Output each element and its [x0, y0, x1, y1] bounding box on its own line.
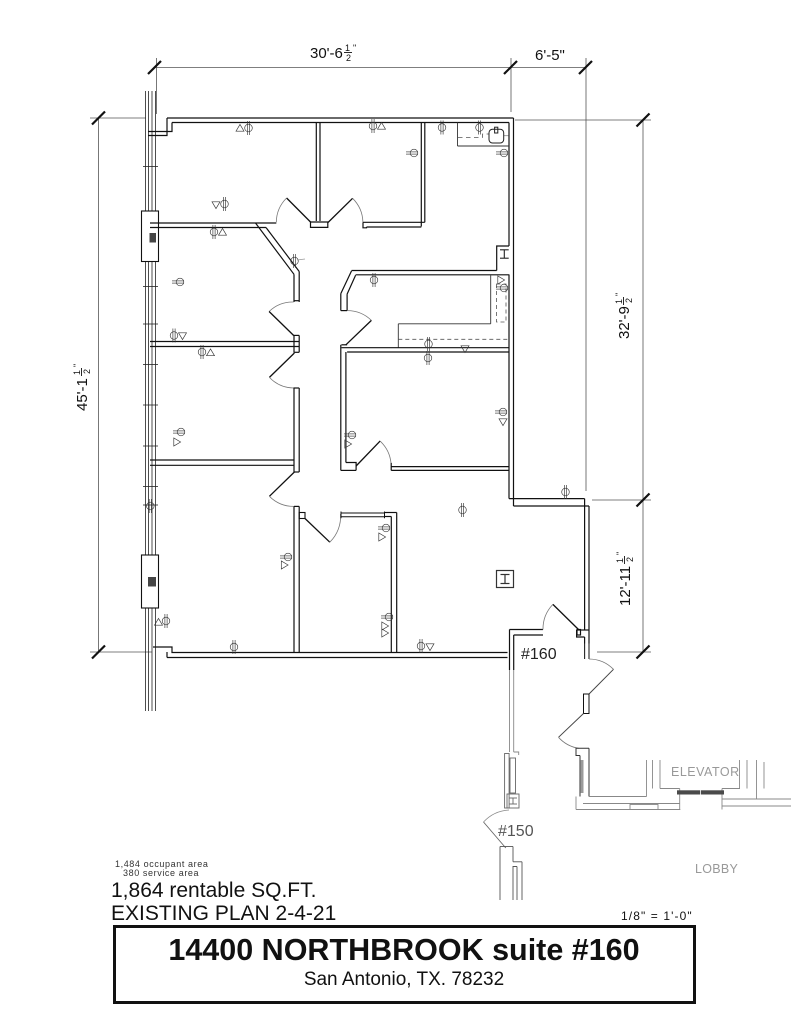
svg-text:#150: #150	[498, 823, 534, 840]
svg-text:2: 2	[346, 53, 351, 63]
svg-text:380 service area: 380 service area	[123, 868, 199, 878]
svg-text:EXISTING PLAN 2-4-21: EXISTING PLAN 2-4-21	[111, 902, 336, 925]
svg-text:1: 1	[72, 370, 82, 375]
svg-text:": "	[353, 43, 356, 53]
svg-text:12'-11: 12'-11	[617, 566, 634, 606]
svg-text:45'-1: 45'-1	[74, 378, 91, 411]
svg-text:": "	[72, 364, 82, 367]
svg-text:1: 1	[615, 558, 625, 563]
svg-text:1,864 rentable SQ.FT.: 1,864 rentable SQ.FT.	[111, 879, 316, 902]
svg-text:6'-5": 6'-5"	[535, 47, 565, 64]
svg-text:San Antonio, TX. 78232: San Antonio, TX. 78232	[304, 969, 504, 990]
svg-text:32'-9: 32'-9	[616, 306, 633, 339]
svg-text:1/8" = 1'-0": 1/8" = 1'-0"	[621, 909, 693, 923]
svg-text:": "	[614, 293, 624, 296]
svg-text:2: 2	[625, 557, 635, 562]
svg-text:14400 NORTHBROOK suite #160: 14400 NORTHBROOK suite #160	[168, 933, 639, 967]
svg-text:2: 2	[82, 369, 92, 374]
svg-text:LOBBY: LOBBY	[695, 862, 739, 876]
svg-text:ELEVATOR: ELEVATOR	[671, 765, 740, 779]
svg-text:#160: #160	[521, 646, 557, 663]
svg-text:2: 2	[624, 298, 634, 303]
svg-text:30'-6: 30'-6	[310, 45, 343, 62]
svg-text:1: 1	[614, 299, 624, 304]
svg-text:1: 1	[345, 43, 350, 53]
svg-text:": "	[615, 552, 625, 555]
